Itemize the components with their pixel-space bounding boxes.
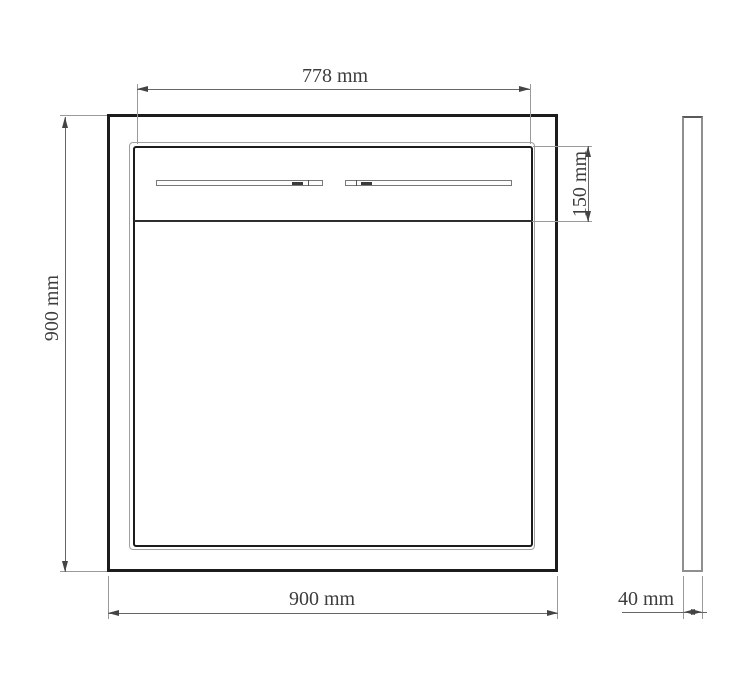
dimension-arrow-icon: [519, 86, 530, 92]
inner-width-dimension-label: 778 mm: [240, 65, 430, 87]
right-slot-dash: [361, 182, 372, 185]
right-slot-tick: [356, 180, 357, 186]
top-section-bottom-extension-line: [532, 221, 592, 222]
top-section-dimension-label: 150 mm: [569, 151, 591, 217]
inner-width-extension-line-left: [137, 84, 138, 144]
top-section-separator-line: [134, 220, 532, 222]
height-extension-line-top: [60, 115, 107, 116]
dimension-arrow-icon: [137, 86, 148, 92]
inner-width-dimension-line: [137, 89, 530, 90]
width-dimension-label: 900 mm: [222, 588, 422, 610]
technical-drawing-canvas: 778 mm 150 mm 900 mm 900 mm 40 mm: [0, 0, 753, 675]
depth-dimension-label: 40 mm: [596, 588, 696, 610]
top-section-top-extension-line: [533, 146, 592, 147]
front-view-inner-panel: [133, 146, 533, 547]
dimension-arrow-icon: [547, 610, 558, 616]
height-dimension-line: [65, 117, 66, 572]
inner-width-extension-line-right: [530, 84, 531, 144]
dimension-arrow-icon: [108, 610, 119, 616]
dimension-arrow-icon: [62, 561, 68, 572]
left-slot-dash: [292, 182, 303, 185]
height-dimension-label: 900 mm: [41, 275, 63, 341]
dimension-arrow-icon: [62, 117, 68, 128]
left-slot-tick: [308, 180, 309, 186]
side-view-panel: [682, 116, 703, 572]
width-dimension-line: [108, 613, 558, 614]
